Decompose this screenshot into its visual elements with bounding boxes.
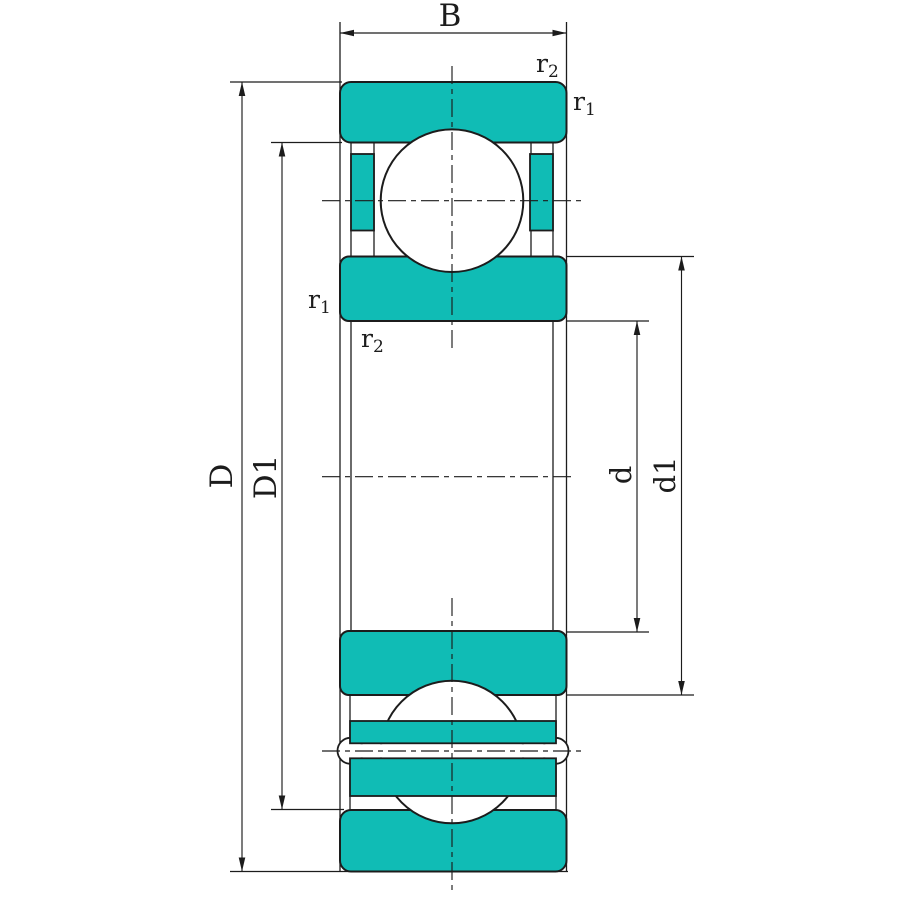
label-D: D: [204, 464, 240, 489]
dim-d-arrow-bottom: [634, 618, 641, 632]
cage-ribbon-lower: [350, 758, 556, 796]
cage-bottom-section: [338, 721, 569, 796]
dim-d1-arrow-top: [678, 257, 685, 271]
label-d1: d1: [648, 456, 682, 493]
label-D1: D1: [248, 455, 284, 500]
cage-ribbon-upper: [350, 721, 556, 743]
dim-D1-arrow-top: [279, 143, 286, 157]
dim-B-arrow-right: [553, 30, 567, 37]
label-B: B: [439, 0, 462, 34]
cage-segment-left: [351, 154, 374, 231]
label-r1-top: r1: [573, 87, 596, 120]
dim-B-arrow-left: [340, 30, 354, 37]
dim-D-arrow-top: [239, 82, 246, 96]
label-r1-left: r1: [308, 285, 331, 318]
bearing-cross-section-diagram: B D D1 d d1 r2 r1 r1 r2: [0, 0, 900, 900]
cage-segment-right: [530, 154, 553, 231]
label-r2-top: r2: [536, 49, 559, 82]
dim-D1-arrow-bottom: [279, 796, 286, 810]
dim-D-arrow-bottom: [239, 858, 246, 872]
dim-d-arrow-top: [634, 321, 641, 335]
label-r2-left: r2: [361, 324, 384, 357]
dim-d1-arrow-bottom: [678, 681, 685, 695]
bearing-drawing-canvas: B D D1 d d1 r2 r1 r1 r2: [0, 0, 900, 900]
label-d: d: [604, 466, 638, 485]
